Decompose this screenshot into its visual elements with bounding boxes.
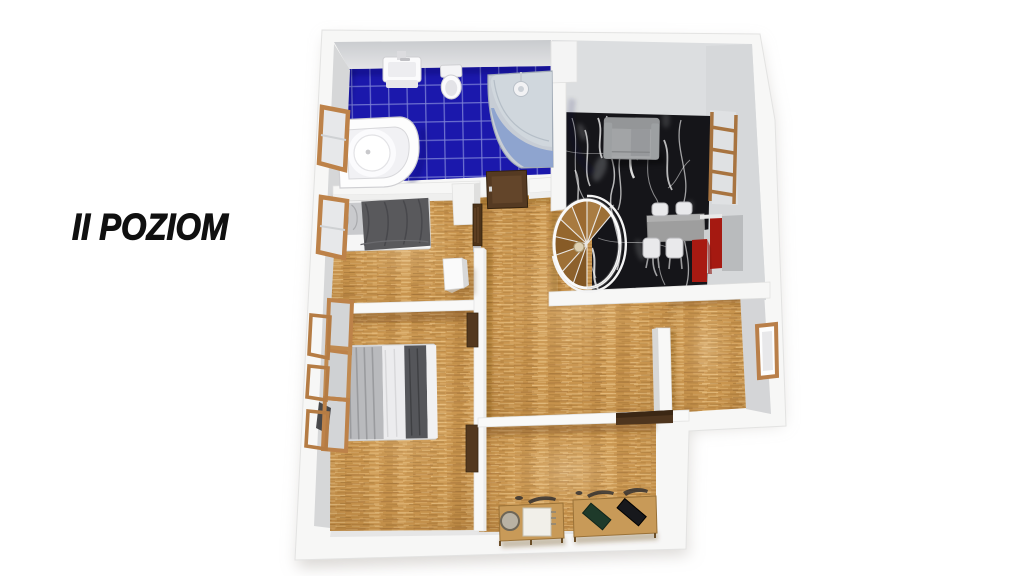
svg-text:II POZIOM: II POZIOM [72, 207, 229, 248]
